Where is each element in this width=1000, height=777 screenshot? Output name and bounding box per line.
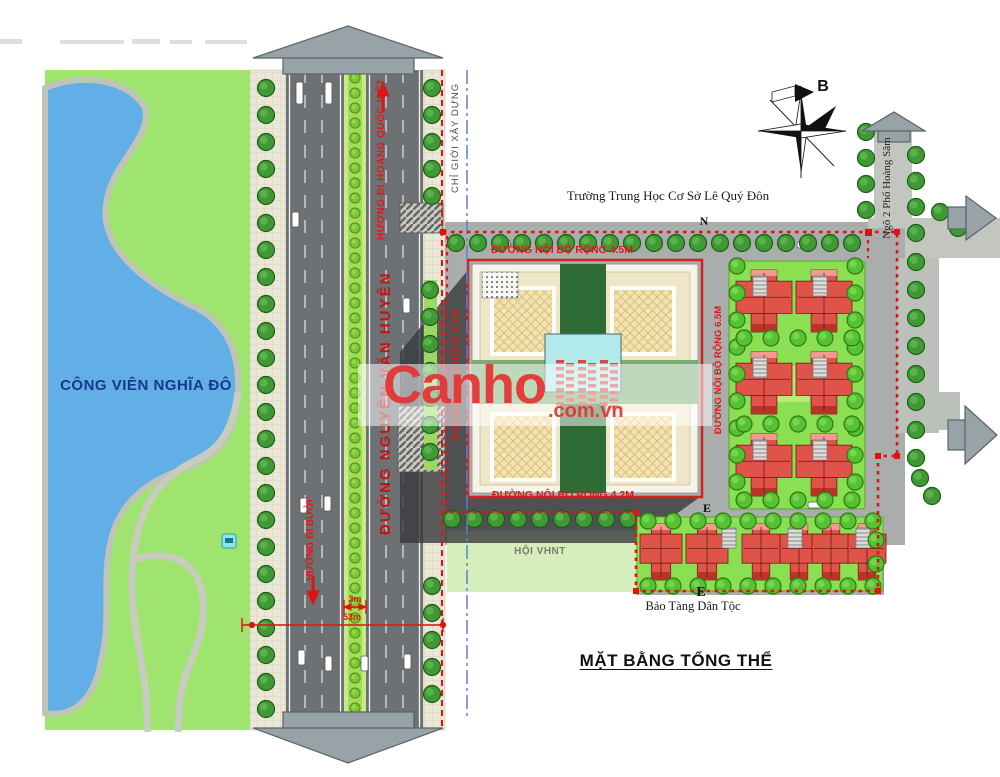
construction-boundary-label: CHỈ GIỚI XÂY DỰNG <box>451 83 463 193</box>
park-area <box>45 70 250 732</box>
plan-title: MẶT BẰNG TỔNG THỂ <box>566 652 786 670</box>
compass-icon <box>758 84 846 178</box>
zebra-patch-north <box>400 203 443 233</box>
watermark-brand: Canho <box>383 358 546 412</box>
building-grid-block <box>482 272 518 298</box>
park-label: CÔNG VIÊN NGHĨA ĐÔ <box>34 378 258 394</box>
marker-n: N <box>697 215 711 228</box>
site-plan: Trường Trung Học Cơ Sở Lê Quý Đôn CÔNG V… <box>0 0 1000 777</box>
scan-artifacts <box>0 39 247 44</box>
internal-road-east-label: ĐƯỜNG NỘI BỘ RỘNG 6.5M <box>714 295 726 445</box>
compass-north-label: B <box>812 79 834 96</box>
internal-road-top-label: ĐƯỜNG NỘI BỘ RỘNG 4.5M <box>462 245 662 256</box>
median-dimension-label: 3m <box>340 595 370 604</box>
school-label: Trường Trung Học Cơ Sở Lê Quý Đôn <box>518 189 818 203</box>
marker-e-bottom: E <box>693 586 709 601</box>
watermark-suffix: .com.vn <box>548 400 624 423</box>
culture-house-label: HỘI VHNT <box>490 547 590 558</box>
road-dimension-label: 53m <box>335 613 369 622</box>
bus-stop-icon <box>222 534 236 548</box>
watermark: Canho .com.vn <box>358 364 712 426</box>
marker-e-top: E <box>700 502 714 515</box>
alley-label: Ngõ 2 Phố Hoàng Sâm <box>882 133 896 243</box>
museum-label: Bảo Tàng Dân Tộc <box>613 600 773 613</box>
arrow-north <box>253 26 443 74</box>
direction-north-label: HƯỚNG ĐI HOÀNG QUỐC VIỆT <box>377 80 389 240</box>
internal-road-bottom-label: ĐƯỜNG NỘI BỘ RỘNG 4.2M <box>463 490 663 501</box>
direction-south-label: HƯỚNG ĐI BƯỞI <box>306 495 318 585</box>
